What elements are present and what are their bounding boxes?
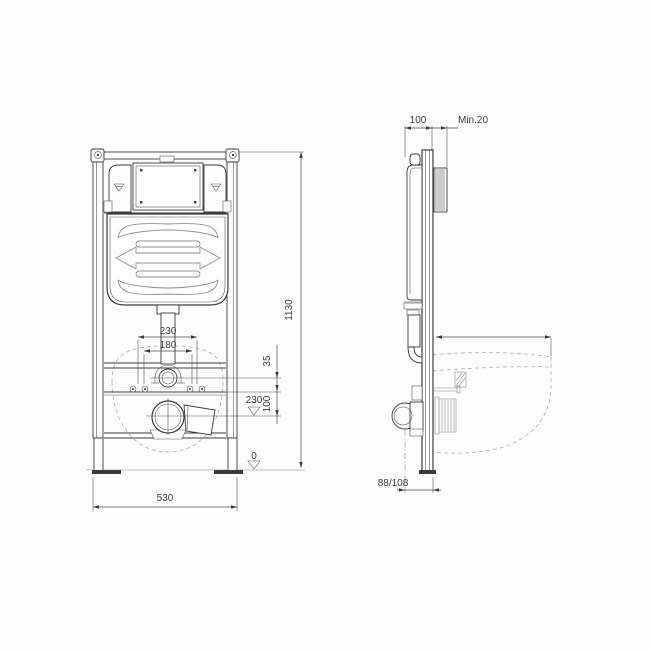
level-marker-0: 0 (248, 451, 260, 469)
dim-88-108-label: 88/108 (378, 478, 409, 489)
dimension-35-100: 35 100 (262, 345, 279, 424)
level-marker-icon (248, 461, 260, 469)
foot-plate (214, 470, 243, 474)
dim-depth-100-label: 100 (410, 115, 427, 126)
waste-elbow-side (392, 386, 423, 436)
level-marker-230: 230 (246, 395, 263, 415)
foot-plate (419, 470, 436, 474)
hanger-tab (160, 156, 174, 162)
dimension-height-1130: 1130 (239, 152, 304, 468)
front-view: 230 180 35 100 230 (86, 149, 305, 511)
water-level-icon (114, 184, 124, 191)
technical-drawing-page: 230 180 35 100 230 (0, 0, 650, 650)
frame-feet (92, 438, 243, 474)
hinge-block (104, 201, 112, 212)
level-marker-icon (248, 407, 260, 415)
cistern-side (404, 154, 422, 363)
dimension-bowl-depth (436, 335, 551, 356)
dim-100-label: 100 (262, 395, 273, 412)
dim-min20-label: Min.20 (458, 115, 488, 126)
dim-bolt-230-label: 230 (160, 326, 177, 337)
dim-35-label: 35 (262, 355, 273, 367)
installation-frame-drawing: 230 180 35 100 230 (0, 0, 650, 650)
waste-outlet-front (150, 398, 215, 439)
access-window (104, 163, 231, 213)
waste-elbow-box (184, 405, 215, 435)
connection-pipes (433, 372, 466, 434)
hinge-block (223, 201, 231, 212)
dimension-width-530: 530 (93, 477, 237, 511)
water-level-icon (211, 184, 221, 191)
level-230-label: 230 (246, 395, 263, 406)
dim-530-label: 530 (157, 493, 174, 504)
dim-1130-label: 1130 (284, 299, 295, 321)
wall-covering-block (434, 168, 447, 212)
level-0-label: 0 (251, 451, 257, 462)
cistern-front (107, 214, 228, 305)
side-view: 100 Min.20 88/108 (378, 115, 551, 493)
foot-plate (92, 470, 121, 474)
flush-pipe-side (408, 315, 420, 347)
dim-bolt-180-label: 180 (160, 340, 177, 351)
